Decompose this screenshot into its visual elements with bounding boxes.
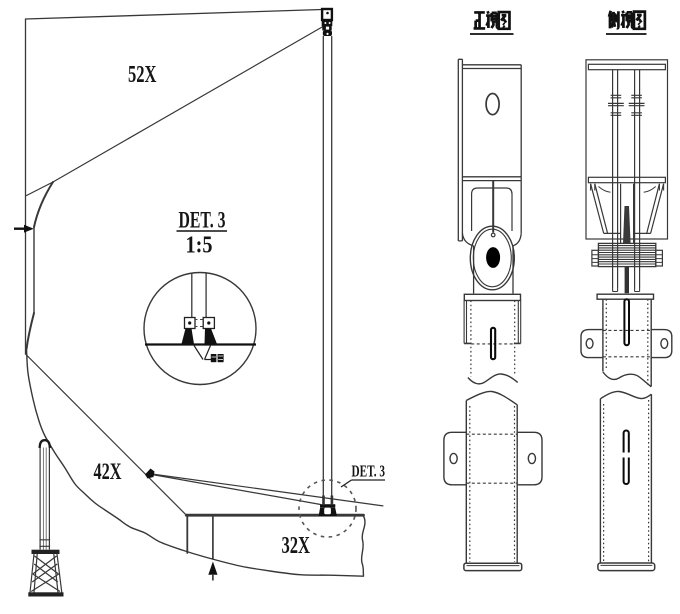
svg-text:DET. 3: DET. 3 <box>179 208 226 233</box>
svg-text:1:5: 1:5 <box>186 233 213 259</box>
svg-text:42X: 42X <box>94 459 122 484</box>
svg-text:32X: 32X <box>282 533 311 559</box>
svg-text:DET. 3: DET. 3 <box>352 462 386 481</box>
svg-text:52X: 52X <box>128 62 157 88</box>
